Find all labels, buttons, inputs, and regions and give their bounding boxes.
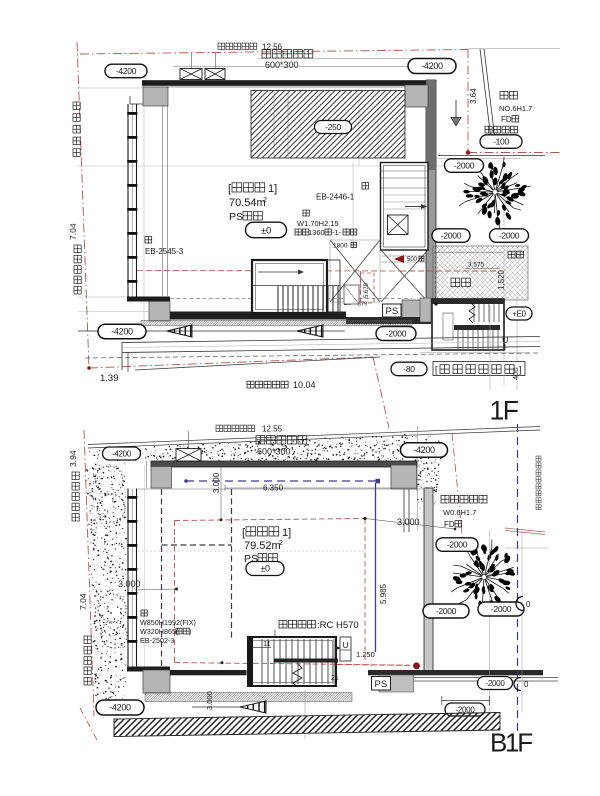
svg-text:70.54m: 70.54m bbox=[229, 197, 266, 209]
svg-text:-2000: -2000 bbox=[486, 679, 506, 688]
svg-text:FD: FD bbox=[444, 520, 455, 529]
svg-text:1]: 1] bbox=[268, 183, 277, 195]
svg-text:600*300: 600*300 bbox=[265, 60, 299, 70]
svg-text:-2000: -2000 bbox=[436, 606, 457, 616]
svg-text:1F: 1F bbox=[490, 396, 519, 426]
svg-text:7.04: 7.04 bbox=[78, 593, 88, 610]
svg-text:2: 2 bbox=[279, 540, 283, 547]
svg-text:[: [ bbox=[228, 183, 231, 195]
svg-text:-4200: -4200 bbox=[421, 61, 443, 71]
svg-text:1.39: 1.39 bbox=[100, 373, 119, 384]
svg-text:-2000: -2000 bbox=[441, 231, 462, 241]
svg-text:U: U bbox=[502, 335, 509, 345]
svg-text:6.350: 6.350 bbox=[263, 484, 284, 493]
svg-text:3.000: 3.000 bbox=[118, 579, 141, 589]
svg-text:-250: -250 bbox=[325, 122, 341, 132]
svg-text:PS: PS bbox=[229, 211, 243, 223]
svg-text:3.64: 3.64 bbox=[469, 88, 478, 104]
svg-text:-1-: -1- bbox=[332, 228, 342, 237]
svg-text:7.04: 7.04 bbox=[68, 223, 78, 240]
svg-text:1]: 1] bbox=[282, 527, 291, 539]
svg-text:EB-2545-3: EB-2545-3 bbox=[145, 247, 184, 256]
svg-text:PS: PS bbox=[375, 679, 388, 690]
svg-text:2: 2 bbox=[263, 197, 267, 204]
svg-text:79.52m: 79.52m bbox=[244, 540, 281, 552]
svg-text:EB-2502-3: EB-2502-3 bbox=[140, 636, 174, 645]
svg-text:-2000: -2000 bbox=[454, 161, 475, 171]
svg-text:-2000: -2000 bbox=[491, 604, 512, 614]
svg-text:3.575: 3.575 bbox=[468, 262, 485, 269]
svg-text:B1F: B1F bbox=[490, 728, 532, 758]
svg-text:11: 11 bbox=[263, 639, 271, 648]
svg-text:+E0: +E0 bbox=[512, 309, 526, 318]
svg-text:FD: FD bbox=[501, 115, 512, 124]
svg-text:-4200: -4200 bbox=[413, 445, 435, 455]
svg-text:1,520: 1,520 bbox=[497, 269, 506, 290]
svg-text:0: 0 bbox=[526, 600, 531, 609]
svg-text:3.000: 3.000 bbox=[397, 517, 420, 527]
svg-text:1800: 1800 bbox=[333, 243, 348, 250]
svg-text:PS: PS bbox=[386, 306, 399, 317]
svg-text:3.94: 3.94 bbox=[68, 450, 78, 467]
svg-text:679: 679 bbox=[358, 302, 367, 308]
svg-text:400: 400 bbox=[511, 367, 520, 380]
svg-text:-100: -100 bbox=[493, 137, 509, 147]
svg-text:3.000: 3.000 bbox=[212, 472, 221, 493]
svg-text:1.250: 1.250 bbox=[356, 650, 375, 659]
svg-text:-2000: -2000 bbox=[386, 329, 407, 339]
svg-text:-4200: -4200 bbox=[109, 703, 131, 713]
svg-text:-2000: -2000 bbox=[447, 540, 468, 550]
svg-text:): ) bbox=[189, 627, 191, 636]
svg-text:-4200: -4200 bbox=[116, 66, 137, 76]
svg-text:-4200: -4200 bbox=[111, 327, 133, 337]
svg-text:10.04: 10.04 bbox=[293, 380, 316, 390]
svg-text:21: 21 bbox=[331, 675, 339, 682]
svg-text:W1.70H2.15: W1.70H2.15 bbox=[297, 219, 339, 228]
svg-text:5.985: 5.985 bbox=[379, 583, 388, 604]
svg-text:NO.6H1.7: NO.6H1.7 bbox=[499, 104, 532, 113]
svg-text::RC H570: :RC H570 bbox=[317, 620, 359, 631]
svg-text:±0: ±0 bbox=[261, 225, 271, 236]
svg-text:W850H1992(FIX): W850H1992(FIX) bbox=[140, 618, 196, 627]
svg-text:500: 500 bbox=[407, 257, 418, 263]
svg-text:-2000: -2000 bbox=[499, 231, 520, 241]
svg-text:0: 0 bbox=[524, 680, 529, 689]
svg-text:-4200: -4200 bbox=[112, 449, 132, 458]
svg-text:12.55: 12.55 bbox=[262, 425, 283, 434]
svg-text:±0: ±0 bbox=[260, 564, 270, 574]
svg-text:-80: -80 bbox=[403, 364, 415, 374]
svg-text:U: U bbox=[343, 640, 349, 650]
svg-text:1360: 1360 bbox=[308, 228, 325, 237]
svg-text:W0.6H1.7: W0.6H1.7 bbox=[443, 508, 476, 517]
svg-text:5.679: 5.679 bbox=[364, 282, 370, 298]
svg-text:EB-2446-1: EB-2446-1 bbox=[316, 193, 355, 202]
svg-text:3.000: 3.000 bbox=[205, 691, 214, 710]
svg-text:[: [ bbox=[242, 527, 245, 539]
svg-text:W320H865(: W320H865( bbox=[140, 627, 179, 636]
